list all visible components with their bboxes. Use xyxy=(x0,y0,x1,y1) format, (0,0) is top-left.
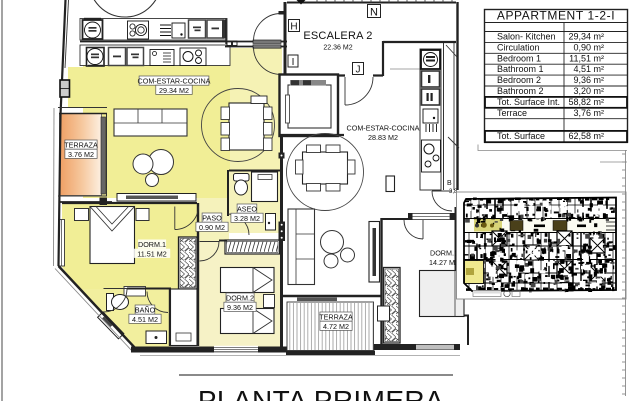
svg-text:DORM.1: DORM.1 xyxy=(138,240,166,249)
svg-text:58,82 m²: 58,82 m² xyxy=(568,97,604,107)
svg-text:4.51 M2: 4.51 M2 xyxy=(132,315,158,324)
svg-text:Bathroom 1: Bathroom 1 xyxy=(497,64,544,74)
svg-text:29,34 m²: 29,34 m² xyxy=(568,32,604,42)
svg-text:Terrace: Terrace xyxy=(497,108,527,118)
svg-text:Bedroom 2: Bedroom 2 xyxy=(497,75,541,85)
svg-text:3,76 m²: 3,76 m² xyxy=(573,108,604,118)
svg-text:4.72 M2: 4.72 M2 xyxy=(323,322,349,331)
svg-text:TERRAZA: TERRAZA xyxy=(64,141,98,150)
svg-text:Tot. Surface: Tot. Surface xyxy=(497,131,545,141)
svg-text:Bathroom 2: Bathroom 2 xyxy=(497,86,544,96)
svg-text:14.27 M2: 14.27 M2 xyxy=(429,258,459,267)
svg-text:11.51 M2: 11.51 M2 xyxy=(137,249,166,258)
svg-text:B: B xyxy=(447,180,452,187)
svg-text:11,51 m²: 11,51 m² xyxy=(569,53,604,63)
svg-text:J: J xyxy=(356,65,361,76)
svg-text:ESCALERA 2: ESCALERA 2 xyxy=(303,30,372,42)
svg-text:ASEO: ASEO xyxy=(237,205,257,214)
svg-text:I: I xyxy=(292,57,295,68)
svg-text:APPARTMENT 1-2-I: APPARTMENT 1-2-I xyxy=(497,9,615,23)
svg-text:28.83 M2: 28.83 M2 xyxy=(368,133,398,142)
svg-text:22.36 M2: 22.36 M2 xyxy=(323,45,352,52)
svg-text:3,20 m²: 3,20 m² xyxy=(573,86,604,96)
svg-text:3.76 M2: 3.76 M2 xyxy=(68,150,94,159)
svg-text:PLANTA PRIMERA: PLANTA PRIMERA xyxy=(198,385,444,401)
svg-text:H: H xyxy=(290,22,297,33)
svg-text:TERRAZA: TERRAZA xyxy=(319,313,353,322)
svg-text:Salon- Kitchen: Salon- Kitchen xyxy=(497,32,556,42)
svg-text:29.34 M2: 29.34 M2 xyxy=(159,86,189,95)
svg-text:DORM.1: DORM.1 xyxy=(430,249,458,258)
svg-text:Bedroom 1: Bedroom 1 xyxy=(497,53,541,63)
svg-text:DORM.2: DORM.2 xyxy=(226,294,254,303)
svg-text:COM-ESTAR-COCINA: COM-ESTAR-COCINA xyxy=(347,124,420,133)
svg-text:3.28 M2: 3.28 M2 xyxy=(234,214,260,223)
svg-text:BAÑO: BAÑO xyxy=(135,306,156,315)
svg-text:COM-ESTAR-COCINA: COM-ESTAR-COCINA xyxy=(138,77,211,86)
svg-text:0.90 M2: 0.90 M2 xyxy=(199,223,225,232)
svg-text:4,51 m²: 4,51 m² xyxy=(573,64,604,74)
svg-text:9.36 M2: 9.36 M2 xyxy=(227,303,253,312)
svg-text:Circulation: Circulation xyxy=(497,42,540,52)
svg-text:62,58 m²: 62,58 m² xyxy=(568,131,604,141)
svg-text:9,36 m²: 9,36 m² xyxy=(573,75,604,85)
svg-text:PASO: PASO xyxy=(202,214,222,223)
svg-text:N: N xyxy=(370,7,378,19)
svg-text:Tot. Surface Int.: Tot. Surface Int. xyxy=(497,97,560,107)
svg-text:0,90 m²: 0,90 m² xyxy=(573,42,604,52)
